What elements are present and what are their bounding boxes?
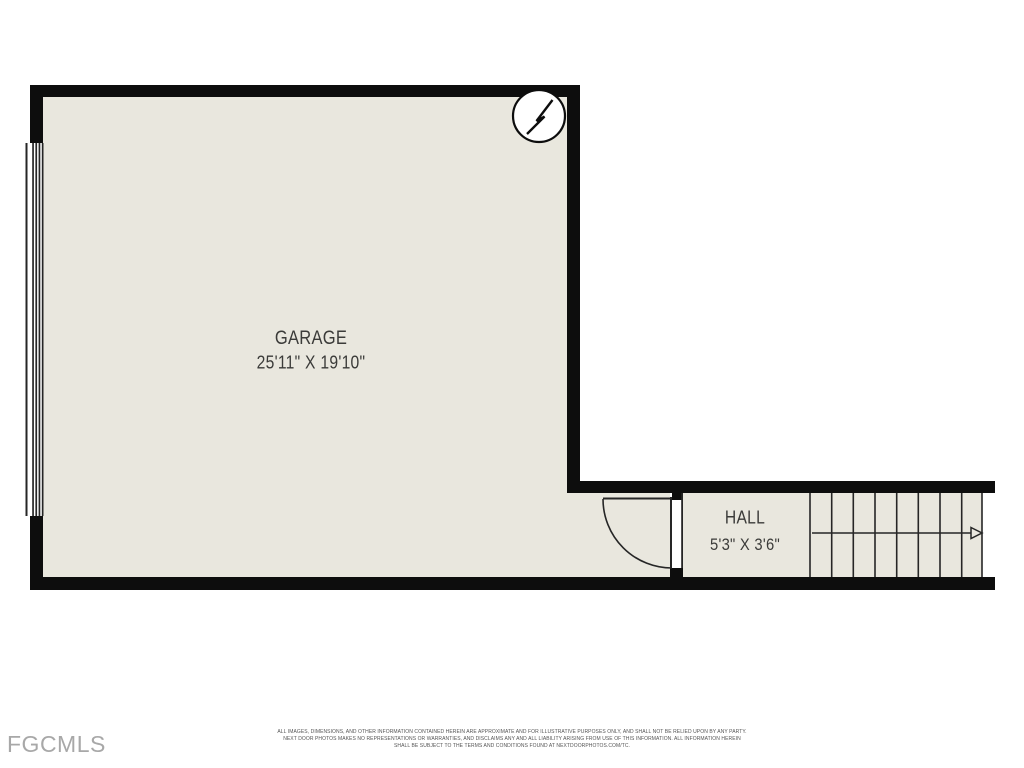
floorplan-canvas: GARAGE 25'11" X 19'10" HALL 5'3" X 3'6" … — [0, 0, 1024, 768]
doorway-right-line — [681, 493, 683, 568]
door-jamb-lower — [670, 568, 683, 578]
disclaimer-line-1: ALL IMAGES, DIMENSIONS, AND OTHER INFORM… — [0, 729, 1024, 736]
garage-top-wall — [30, 85, 580, 97]
disclaimer-line-2: NEXT DOOR PHOTOS MAKES NO REPRESENTATION… — [0, 736, 1024, 743]
floor-areas — [43, 97, 982, 577]
room-name-hall: HALL — [725, 508, 765, 529]
room-name-garage: GARAGE — [275, 328, 347, 350]
north-arrow-icon — [513, 90, 565, 142]
hall-top-wall — [567, 481, 995, 493]
bottom-wall — [30, 577, 995, 590]
room-dimensions-hall: 5'3" X 3'6" — [710, 535, 780, 555]
garage-door-icon — [26, 143, 44, 516]
garage-right-wall — [567, 85, 580, 493]
disclaimer-line-3: SHALL BE SUBJECT TO THE TERMS AND CONDIT… — [0, 743, 1024, 750]
disclaimer-text: ALL IMAGES, DIMENSIONS, AND OTHER INFORM… — [0, 729, 1024, 750]
floorplan-drawing — [0, 0, 1024, 768]
garage-door-outer-line — [26, 143, 28, 516]
garage-left-wall-upper — [30, 85, 43, 143]
doorway-left-line — [670, 497, 672, 568]
room-dimensions-garage: 25'11" X 19'10" — [257, 353, 366, 374]
garage-floor-extension — [567, 493, 670, 577]
